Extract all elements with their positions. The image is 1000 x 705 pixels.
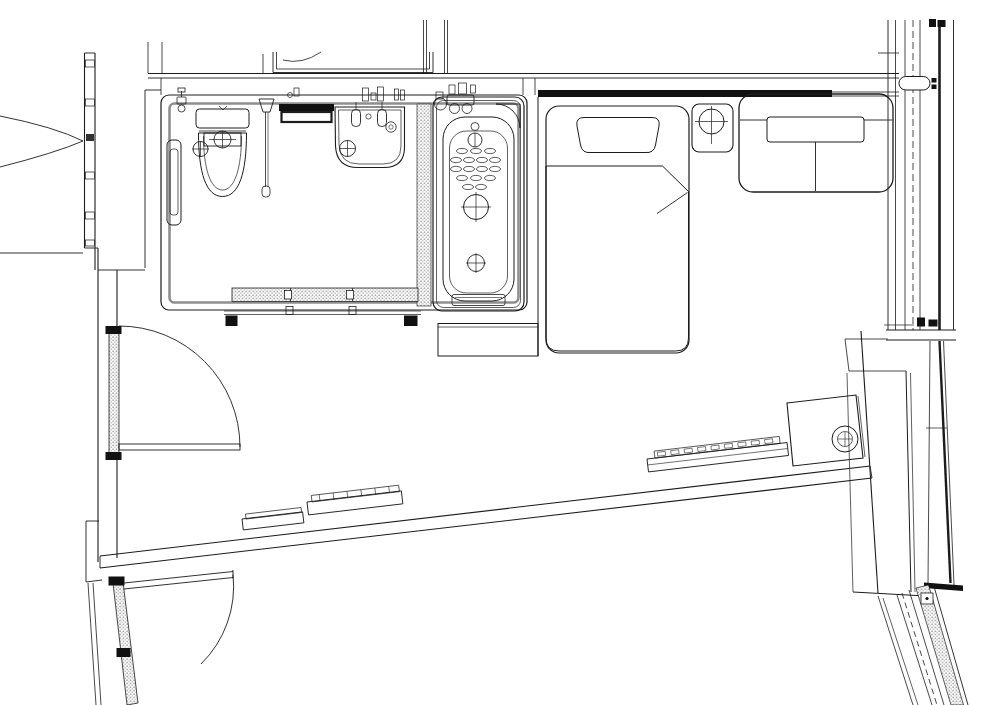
tub-faucet-deck xyxy=(435,83,476,114)
door-post xyxy=(109,332,119,454)
toilet-tank xyxy=(196,109,249,128)
door-post xyxy=(113,582,138,705)
partition-stubs xyxy=(148,20,899,73)
track-end-cap xyxy=(226,316,238,327)
swing-arc-lower xyxy=(0,141,83,167)
top-wall xyxy=(148,20,899,78)
perimeter-unit-b xyxy=(306,485,403,515)
washbasin xyxy=(335,87,405,168)
bathroom-wall-outer xyxy=(161,95,527,310)
latch-mark xyxy=(86,134,94,141)
perimeter-unit-a xyxy=(241,507,303,530)
track-end-cap xyxy=(404,316,418,327)
bathroom-sliding-door xyxy=(224,288,421,326)
secondary-door xyxy=(109,570,234,705)
basin-faucet-right xyxy=(378,110,387,127)
perimeter-unit-c xyxy=(646,436,788,472)
wall-fittings xyxy=(363,87,405,101)
duvet xyxy=(546,166,689,351)
window-wall-right xyxy=(884,19,956,585)
room-door xyxy=(106,326,241,460)
bathroom xyxy=(161,83,527,326)
south-wall-band xyxy=(100,436,872,568)
closet-niche xyxy=(273,52,433,73)
panel-handle xyxy=(347,291,354,300)
plan-root xyxy=(0,19,968,705)
sofa xyxy=(739,94,893,192)
luggage-bench xyxy=(438,324,538,357)
niche-door-arc xyxy=(283,52,321,61)
tub-wall xyxy=(443,117,514,301)
door-swing-arc xyxy=(201,575,234,665)
console-unit xyxy=(787,395,865,466)
pillow xyxy=(577,118,659,153)
wall-tick-marks xyxy=(86,60,95,246)
duvet-fold-line xyxy=(657,193,688,214)
panel-handle xyxy=(285,291,292,300)
bathtub xyxy=(433,83,524,311)
flush-valve xyxy=(177,88,186,112)
lower-right-wall xyxy=(845,331,968,705)
door-swing-arc xyxy=(119,326,240,447)
floor-plan-sheet xyxy=(0,0,1000,705)
sliding-panels xyxy=(232,288,418,302)
window-band-lower xyxy=(878,583,968,705)
sofa-back-cushion xyxy=(767,117,864,142)
tub-jet-pattern xyxy=(451,148,501,189)
towel-rack xyxy=(279,88,334,122)
basin-faucet-left xyxy=(352,110,361,127)
nightstand xyxy=(692,104,733,152)
hand-shower xyxy=(259,99,274,197)
door-leaf xyxy=(119,444,240,450)
mullion-junction xyxy=(899,77,930,91)
bedroom xyxy=(161,78,899,466)
swing-arc-upper xyxy=(0,116,83,141)
mattress xyxy=(546,106,689,353)
tub-floor xyxy=(450,131,508,293)
corridor-door-swing-arcs xyxy=(0,116,83,253)
floor-plan-canvas xyxy=(0,0,1000,705)
wet-area-partition xyxy=(417,104,431,306)
exterior-wall-left xyxy=(85,53,99,270)
pilaster xyxy=(86,521,102,582)
